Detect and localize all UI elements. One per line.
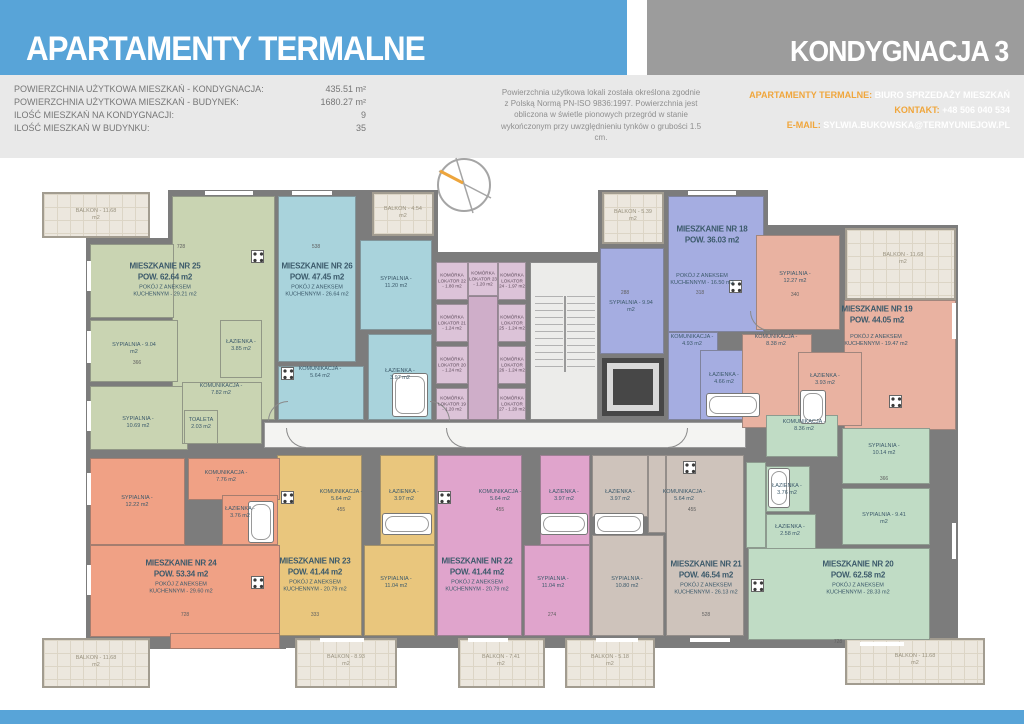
staircase — [530, 262, 598, 420]
apt23-unit: POKÓJ Z ANEKSEM KUCHENNYM - 20.79 m2 — [274, 579, 356, 593]
apt26-unit: POKÓJ Z ANEKSEM KUCHENNYM - 26.64 m2 — [276, 284, 358, 298]
apt20-kitchen-strip — [746, 462, 766, 548]
window-opening — [860, 642, 904, 646]
dimension-label: 366 — [880, 476, 888, 482]
apt24-hall-label: KOMUNIKACJA - 7.76 m2 — [199, 470, 253, 484]
balcony-label: BALKON - 7.41 m2 — [481, 654, 521, 668]
apt20-unit: POKÓJ Z ANEKSEM KUCHENNYM - 28.33 m2 — [817, 582, 899, 596]
balcony-label: BALKON - 5.39 m2 — [613, 209, 653, 223]
apt18-label: MIESZKANIE NR 18 POW. 36.03 m2 — [676, 225, 747, 246]
apt25-bathroom-label: ŁAZIENKA - 3.85 m2 — [221, 339, 261, 353]
apt25-area: POW. 62.64 m2 — [124, 272, 206, 282]
apt24-entry — [170, 633, 280, 649]
stat-value: 9 — [361, 109, 366, 122]
stat-row: ILOŚĆ MIESZKAŃ NA KONDYGNACJI: 9 — [14, 109, 366, 122]
apt18-unit: POKÓJ Z ANEKSEM KUCHENNYM - 16.50 m2 — [661, 273, 743, 287]
storage-22-label: KOMÓRKA LOKATOR 22 - 1.80 m2 — [437, 272, 467, 289]
phone-label: KONTAKT: — [894, 105, 939, 115]
header-gray-banner: KONDYGNACJA 3 — [647, 0, 1024, 75]
stair-flight — [535, 296, 563, 372]
stat-row: POWIERZCHNIA UŻYTKOWA MIESZKAŃ - BUDYNEK… — [14, 96, 366, 109]
storage-26-label: KOMÓRKA LOKATOR 26 - 1.24 m2 — [499, 356, 526, 373]
apt20-hall-label: KOMUNIKACJA - 8.36 m2 — [777, 419, 831, 433]
apt24-bedroom-label: SYPIALNIA - 12.22 m2 — [114, 495, 160, 509]
elevator-core — [613, 369, 653, 405]
apt22-living-room — [437, 455, 522, 636]
apt20-area: POW. 62.58 m2 — [817, 570, 899, 580]
window-opening — [468, 638, 508, 642]
apt23-area: POW. 41.44 m2 — [274, 567, 356, 577]
stats-block: POWIERZCHNIA UŻYTKOWA MIESZKAŃ - KONDYGN… — [14, 83, 366, 135]
window-opening — [87, 565, 91, 595]
stat-label: ILOŚĆ MIESZKAŃ NA KONDYGNACJI: — [14, 109, 174, 122]
balcony-label: BALKON - 4.54 m2 — [383, 206, 423, 220]
apt22-hall-label: KOMUNIKACJA - 5.64 m2 — [473, 489, 527, 503]
apt26-bathroom-label: ŁAZIENKA - 3.97 m2 — [380, 368, 420, 382]
window-opening — [690, 638, 730, 642]
phone-value: +48 506 040 534 — [942, 105, 1010, 115]
apt23-hall-label: KOMUNIKACJA - 5.64 m2 — [314, 489, 368, 503]
apt24-label: MIESZKANIE NR 24 POW. 53.34 m2 POKÓJ Z A… — [140, 558, 222, 595]
stove-icon — [889, 395, 902, 408]
balcony-label: BALKON - 11.68 m2 — [881, 252, 925, 266]
dimension-label: 288 — [621, 290, 629, 296]
apt23-label: MIESZKANIE NR 23 POW. 41.44 m2 POKÓJ Z A… — [274, 556, 356, 593]
storage-corridor — [468, 296, 498, 420]
apt21-unit: POKÓJ Z ANEKSEM KUCHENNYM - 26.13 m2 — [665, 582, 747, 596]
apt22-bathroom-label: ŁAZIENKA - 3.97 m2 — [544, 489, 584, 503]
apt21-area: POW. 46.54 m2 — [665, 570, 747, 580]
apt21-name: MIESZKANIE NR 21 — [665, 559, 747, 569]
stove-icon — [751, 579, 764, 592]
apt22-label: MIESZKANIE NR 22 POW. 41.44 m2 POKÓJ Z A… — [436, 556, 518, 593]
apt23-living-room — [277, 455, 362, 636]
contact-email-line: E-MAIL: SYLWIA.BUKOWSKA@TERMYUNIEJOW.PL — [640, 118, 1010, 133]
apt20-bedroom2-label: SYPIALNIA - 9.41 m2 — [861, 512, 907, 526]
contact-phone-line: KONTAKT: +48 506 040 534 — [640, 103, 1010, 118]
apt26-name: MIESZKANIE NR 26 — [276, 261, 358, 271]
apt24-name: MIESZKANIE NR 24 — [140, 558, 222, 568]
apt18-bedroom-label: SYPIALNIA - 9.94 m2 — [608, 300, 654, 314]
apt20-bathroom1-label: ŁAZIENKA - 3.76 m2 — [767, 483, 807, 497]
stove-icon — [251, 250, 264, 263]
dimension-label: 728 — [177, 244, 185, 250]
window-opening — [320, 638, 364, 642]
apt23-bathroom-label: ŁAZIENKA - 3.97 m2 — [384, 489, 424, 503]
stat-value: 35 — [356, 122, 366, 135]
dimension-label: 728 — [181, 612, 189, 618]
storage-25-label: KOMÓRKA LOKATOR 25 - 1.24 m2 — [499, 314, 526, 331]
window-opening — [205, 191, 253, 195]
window-opening — [87, 473, 91, 505]
apt26-area: POW. 47.45 m2 — [276, 272, 358, 282]
window-opening — [292, 191, 332, 195]
bathtub-icon — [382, 513, 432, 535]
apt19-unit: POKÓJ Z ANEKSEM KUCHENNYM - 19.47 m2 — [835, 334, 917, 348]
stove-icon — [438, 491, 451, 504]
bathtub-icon — [706, 393, 760, 417]
contact-block: APARTAMENTY TERMALNE: BIURO SPRZEDAŻY MI… — [640, 88, 1010, 133]
apt23-bedroom — [364, 545, 435, 636]
window-opening — [596, 638, 638, 642]
apt21-bathroom — [592, 455, 648, 517]
dimension-label: 455 — [496, 507, 504, 513]
storage-27-label: KOMÓRKA LOKATOR 27 - 1.20 m2 — [499, 395, 526, 412]
apt19-hall-label: KOMUNIKACJA - 8.38 m2 — [749, 334, 803, 348]
floor-title: KONDYGNACJA 3 — [790, 36, 1008, 69]
window-opening — [952, 523, 956, 559]
apt25-name: MIESZKANIE NR 25 — [124, 261, 206, 271]
apt26-hall-label: KOMUNIKACJA - 5.64 m2 — [293, 366, 347, 380]
apt21-bedroom-label: SYPIALNIA - 10.80 m2 — [604, 576, 650, 590]
apt18-area: POW. 36.03 m2 — [676, 236, 747, 246]
apt22-name: MIESZKANIE NR 22 — [436, 556, 518, 566]
window-opening — [952, 303, 956, 339]
apt25-unit: POKÓJ Z ANEKSEM KUCHENNYM - 29.21 m2 — [124, 284, 206, 298]
window-opening — [87, 331, 91, 363]
apt23-name: MIESZKANIE NR 23 — [274, 556, 356, 566]
dimension-label: 455 — [337, 507, 345, 513]
balcony-label: BALKON - 8.93 m2 — [326, 654, 366, 668]
apt19-bathroom-label: ŁAZIENKA - 3.93 m2 — [805, 373, 845, 387]
dimension-label: 340 — [791, 292, 799, 298]
stair-divider — [564, 296, 566, 372]
apt21-bathroom-label: ŁAZIENKA - 3.97 m2 — [600, 489, 640, 503]
dimension-label: 318 — [696, 290, 704, 296]
apt20-bathroom2-label: ŁAZIENKA - 2.58 m2 — [770, 524, 810, 538]
apt25-bedroom1-label: SYPIALNIA - 9.04 m2 — [111, 342, 157, 356]
storage-20-label: KOMÓRKA LOKATOR 20 - 1.24 m2 — [437, 356, 467, 373]
apt20-label: MIESZKANIE NR 20 POW. 62.58 m2 POKÓJ Z A… — [817, 559, 899, 596]
apt24-unit: POKÓJ Z ANEKSEM KUCHENNYM - 29.60 m2 — [140, 581, 222, 595]
stat-label: POWIERZCHNIA UŻYTKOWA MIESZKAŃ - BUDYNEK… — [14, 96, 239, 109]
apt25-label: MIESZKANIE NR 25 POW. 62.64 m2 POKÓJ Z A… — [124, 261, 206, 298]
apt18-bathroom-label: ŁAZIENKA - 4.66 m2 — [704, 372, 744, 386]
stat-value: 435.51 m² — [325, 83, 366, 96]
window-opening — [87, 401, 91, 431]
apt18-name: MIESZKANIE NR 18 — [676, 225, 747, 235]
contact-office-line: APARTAMENTY TERMALNE: BIURO SPRZEDAŻY MI… — [640, 88, 1010, 103]
stove-icon — [683, 461, 696, 474]
stat-label: POWIERZCHNIA UŻYTKOWA MIESZKAŃ - KONDYGN… — [14, 83, 264, 96]
storage-19-label: KOMÓRKA LOKATOR 19 - 1.20 m2 — [437, 395, 467, 412]
apt21-hall-label: KOMUNIKACJA - 5.64 m2 — [657, 489, 711, 503]
apt22-bedroom — [524, 545, 590, 636]
elevator — [602, 358, 664, 416]
stove-icon — [281, 491, 294, 504]
apt20-bedroom1-label: SYPIALNIA - 10.14 m2 — [861, 443, 907, 457]
footer-bar — [0, 710, 1024, 724]
dimension-label: 366 — [133, 360, 141, 366]
balcony-label: BALKON - 11.68 m2 — [74, 655, 118, 669]
apt25-bedroom2-label: SYPIALNIA - 10.69 m2 — [115, 416, 161, 430]
window-opening — [688, 191, 736, 195]
dimension-label: 274 — [548, 612, 556, 618]
apt22-area: POW. 41.44 m2 — [436, 567, 518, 577]
floor-plan: MIESZKANIE NR 25 POW. 62.64 m2 POKÓJ Z A… — [0, 183, 1024, 693]
apt19-bedroom-label: SYPIALNIA - 12.27 m2 — [772, 271, 818, 285]
apt25-toilet-label: TOALETA 2.03 m2 — [184, 417, 218, 431]
office-value: BIURO SPRZEDAŻY MIESZKAŃ — [875, 90, 1010, 100]
bathtub-icon — [594, 513, 644, 535]
window-opening — [87, 261, 91, 291]
dimension-label: 455 — [688, 507, 696, 513]
bathtub-icon — [540, 513, 588, 535]
apt18-hall-label: KOMUNIKACJA - 4.93 m2 — [665, 334, 719, 348]
header-blue-banner: APARTAMENTY TERMALNE — [0, 0, 627, 75]
apt22-unit: POKÓJ Z ANEKSEM KUCHENNYM - 20.79 m2 — [436, 579, 518, 593]
apt20-name: MIESZKANIE NR 20 — [817, 559, 899, 569]
dimension-label: 528 — [702, 612, 710, 618]
dimension-label: 333 — [311, 612, 319, 618]
apt22-bedroom-label: SYPIALNIA - 11.04 m2 — [530, 576, 576, 590]
apt23-bedroom-label: SYPIALNIA - 11.04 m2 — [373, 576, 419, 590]
email-label: E-MAIL: — [787, 120, 821, 130]
stat-row: POWIERZCHNIA UŻYTKOWA MIESZKAŃ - KONDYGN… — [14, 83, 366, 96]
stat-value: 1680.27 m² — [320, 96, 366, 109]
apt24-bathroom-label: ŁAZIENKA - 3.76 m2 — [220, 506, 260, 520]
apt19-label: MIESZKANIE NR 19 POW. 44.05 m2 — [841, 305, 912, 326]
apt21-label: MIESZKANIE NR 21 POW. 46.54 m2 POKÓJ Z A… — [665, 559, 747, 596]
apt19-area: POW. 44.05 m2 — [841, 316, 912, 326]
balcony-label: BALKON - 11.68 m2 — [893, 653, 937, 667]
storage-21-label: KOMÓRKA LOKATOR 21 - 1.24 m2 — [437, 314, 467, 331]
apt19-name: MIESZKANIE NR 19 — [841, 305, 912, 315]
stove-icon — [251, 576, 264, 589]
apt21-living-room — [666, 455, 744, 636]
balcony-label: BALKON - 5.18 m2 — [590, 654, 630, 668]
stair-flight — [567, 296, 595, 372]
page-title: APARTAMENTY TERMALNE — [26, 30, 425, 69]
storage-23-label: KOMÓRKA LOKATOR 23 - 1.20 m2 — [469, 270, 497, 287]
stat-label: ILOŚĆ MIESZKAŃ W BUDYNKU: — [14, 122, 150, 135]
header-info-strip: POWIERZCHNIA UŻYTKOWA MIESZKAŃ - KONDYGN… — [0, 75, 1024, 158]
apt25-hall-label: KOMUNIKACJA - 7.82 m2 — [194, 383, 248, 397]
storage-24-label: KOMÓRKA LOKATOR 24 - 1.97 m2 — [499, 272, 526, 289]
apt26-bedroom-label: SYPIALNIA - 11.20 m2 — [373, 276, 419, 290]
apt24-area: POW. 53.34 m2 — [140, 569, 222, 579]
balcony-label: BALKON - 11.68 m2 — [74, 208, 118, 222]
office-label: APARTAMENTY TERMALNE: — [749, 90, 872, 100]
dimension-label: 728 — [834, 639, 842, 645]
stat-row: ILOŚĆ MIESZKAŃ W BUDYNKU: 35 — [14, 122, 366, 135]
email-value: SYLWIA.BUKOWSKA@TERMYUNIEJOW.PL — [823, 120, 1010, 130]
apt26-label: MIESZKANIE NR 26 POW. 47.45 m2 POKÓJ Z A… — [276, 261, 358, 298]
dimension-label: 538 — [312, 244, 320, 250]
